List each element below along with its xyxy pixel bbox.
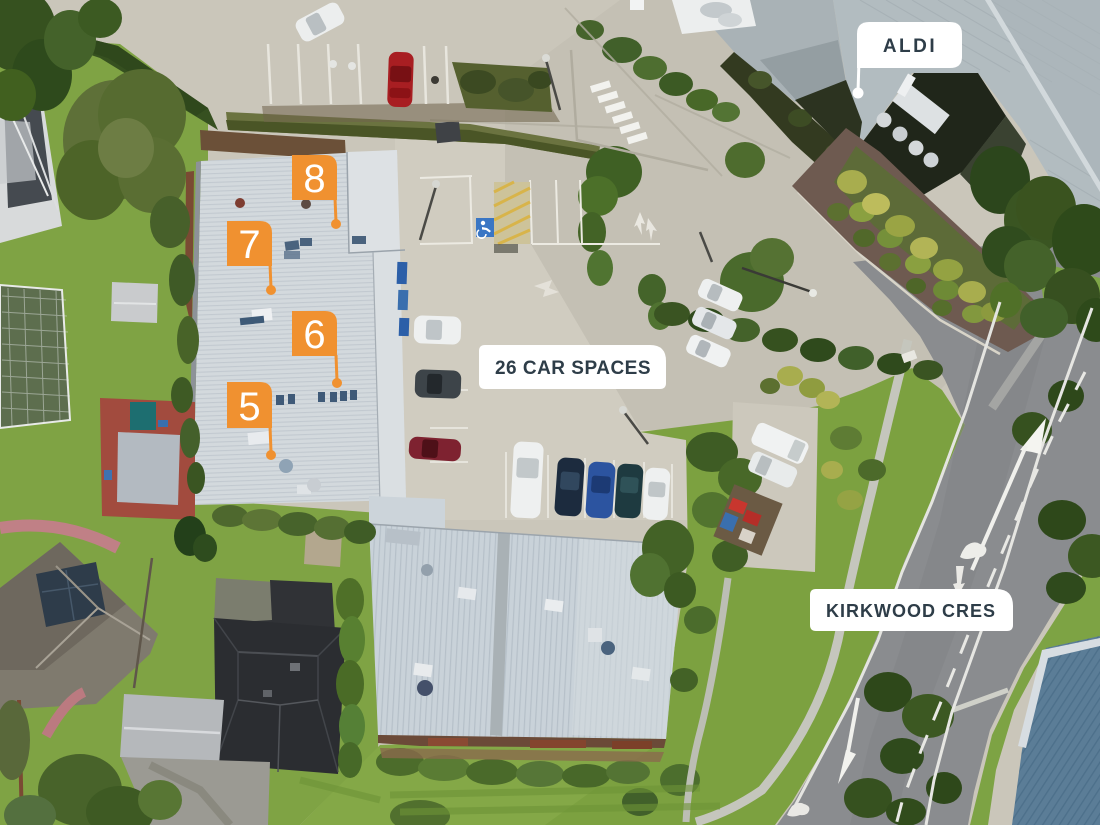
- svg-text:ALDI: ALDI: [883, 36, 937, 57]
- svg-text:8: 8: [303, 157, 325, 201]
- svg-text:26 CAR SPACES: 26 CAR SPACES: [495, 358, 651, 379]
- svg-text:5: 5: [238, 385, 260, 429]
- svg-text:6: 6: [303, 313, 325, 357]
- svg-text:KIRKWOOD CRES: KIRKWOOD CRES: [826, 601, 996, 621]
- svg-text:7: 7: [238, 223, 260, 267]
